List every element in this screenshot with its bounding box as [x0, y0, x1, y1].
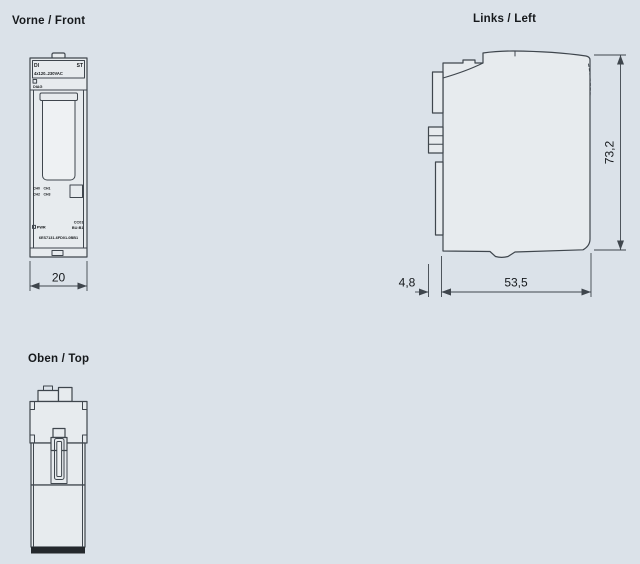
left-profile [443, 51, 590, 257]
module-voltage-label: 4x120..230VAC [34, 71, 63, 76]
front-view-title: Vorne / Front [12, 15, 85, 27]
connector-left-block [38, 391, 59, 402]
width-dimension-value: 20 [52, 271, 66, 285]
rear-lower-hook [436, 162, 444, 235]
channel-label-3: CH3 [44, 193, 51, 197]
pwr-label: PWR [37, 226, 46, 230]
terminal-band [31, 547, 85, 554]
channel-label-1: CH1 [44, 187, 51, 191]
left-dimension-depth: 53,5 [442, 253, 592, 297]
channel-label-0: CH0 [33, 187, 40, 191]
front-dimension-width: 20 [30, 261, 87, 291]
color-code-label: CC01 [74, 220, 84, 224]
left-view-drawing: 73,2 53,5 4,8 [395, 40, 640, 300]
channel-label-2: CH2 [33, 193, 40, 197]
side-profile-body [443, 51, 590, 257]
door-panel [43, 101, 76, 181]
rear-ridges [429, 127, 444, 153]
connector-right-block [59, 388, 73, 402]
connector-bump [44, 386, 53, 391]
latch-cap [53, 429, 65, 438]
top-backplane-connector [38, 386, 72, 402]
article-number: 6ES7131-6FD01-0BB1 [39, 236, 78, 240]
base-unit-label: BU:B1 [72, 226, 84, 230]
left-view-title: Links / Left [473, 13, 536, 25]
module-variant-label: ST [77, 63, 83, 69]
height-dimension-value: 73,2 [603, 140, 617, 164]
diag-label: DIAG [33, 85, 43, 89]
left-dimension-rear-depth: 4,8 [399, 264, 455, 297]
front-view-drawing: DI ST 4x120..230VAC DIAG CH0 CH1 CH2 CH3 [20, 45, 105, 295]
dimension-drawing-page: Vorne / Front DI ST 4x120..230VAC DIAG [0, 0, 640, 564]
module-type-label: DI [34, 63, 40, 69]
rear-depth-dimension-value: 4,8 [399, 276, 416, 290]
latch-slot-inner [57, 442, 62, 477]
housing-lower-section [31, 485, 85, 547]
left-rear-hooks [429, 72, 444, 235]
top-view-drawing [15, 345, 100, 564]
rear-upper-hook [433, 72, 444, 113]
left-dimension-height: 73,2 [594, 55, 626, 250]
depth-dimension-value: 53,5 [504, 276, 528, 290]
